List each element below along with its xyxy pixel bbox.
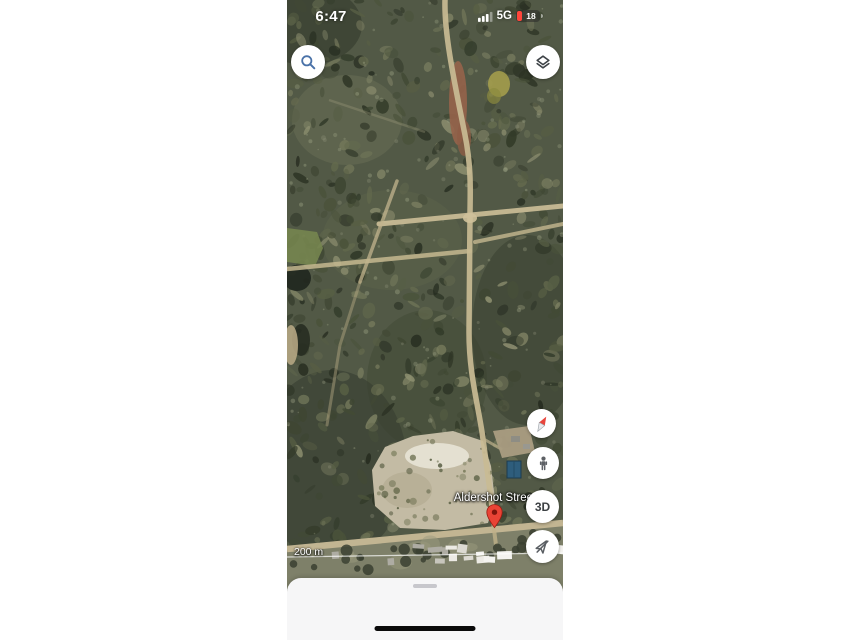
battery-low-icon: 18: [516, 10, 540, 22]
street-view-button[interactable]: [527, 447, 559, 479]
scale-bar-label: 200 m: [294, 546, 323, 558]
status-right-cluster: 5G 18: [478, 10, 540, 22]
network-type-label: 5G: [497, 10, 512, 22]
pegman-icon: [536, 456, 551, 471]
search-button[interactable]: [291, 45, 325, 79]
battery-fill-red: [517, 11, 522, 21]
layers-icon: [534, 53, 552, 71]
phone-screen: 6:47 5G 18: [287, 0, 563, 640]
cellular-signal-icon: [478, 11, 493, 22]
3d-button-label: 3D: [535, 500, 550, 514]
battery-cap: [541, 14, 543, 19]
map-pin-marker[interactable]: [486, 504, 503, 534]
street-name-label: Aldershot Street: [454, 492, 536, 504]
battery-percent-label: 18: [522, 10, 540, 22]
3d-view-button[interactable]: 3D: [526, 490, 559, 523]
location-off-icon: [533, 537, 552, 556]
status-time: 6:47: [303, 8, 359, 25]
compass-icon: [532, 414, 552, 434]
status-bar: 6:47 5G 18: [287, 0, 563, 30]
search-icon: [300, 54, 317, 71]
satellite-map-imagery[interactable]: [287, 0, 563, 640]
home-indicator[interactable]: [375, 626, 476, 631]
drag-handle[interactable]: [413, 584, 437, 588]
sandy-clearing: [372, 431, 495, 530]
my-location-disabled-button[interactable]: [526, 530, 559, 563]
compass-button[interactable]: [527, 409, 556, 438]
layers-button[interactable]: [526, 45, 560, 79]
bottom-sheet[interactable]: [287, 578, 563, 640]
red-pin-icon: [486, 504, 503, 529]
